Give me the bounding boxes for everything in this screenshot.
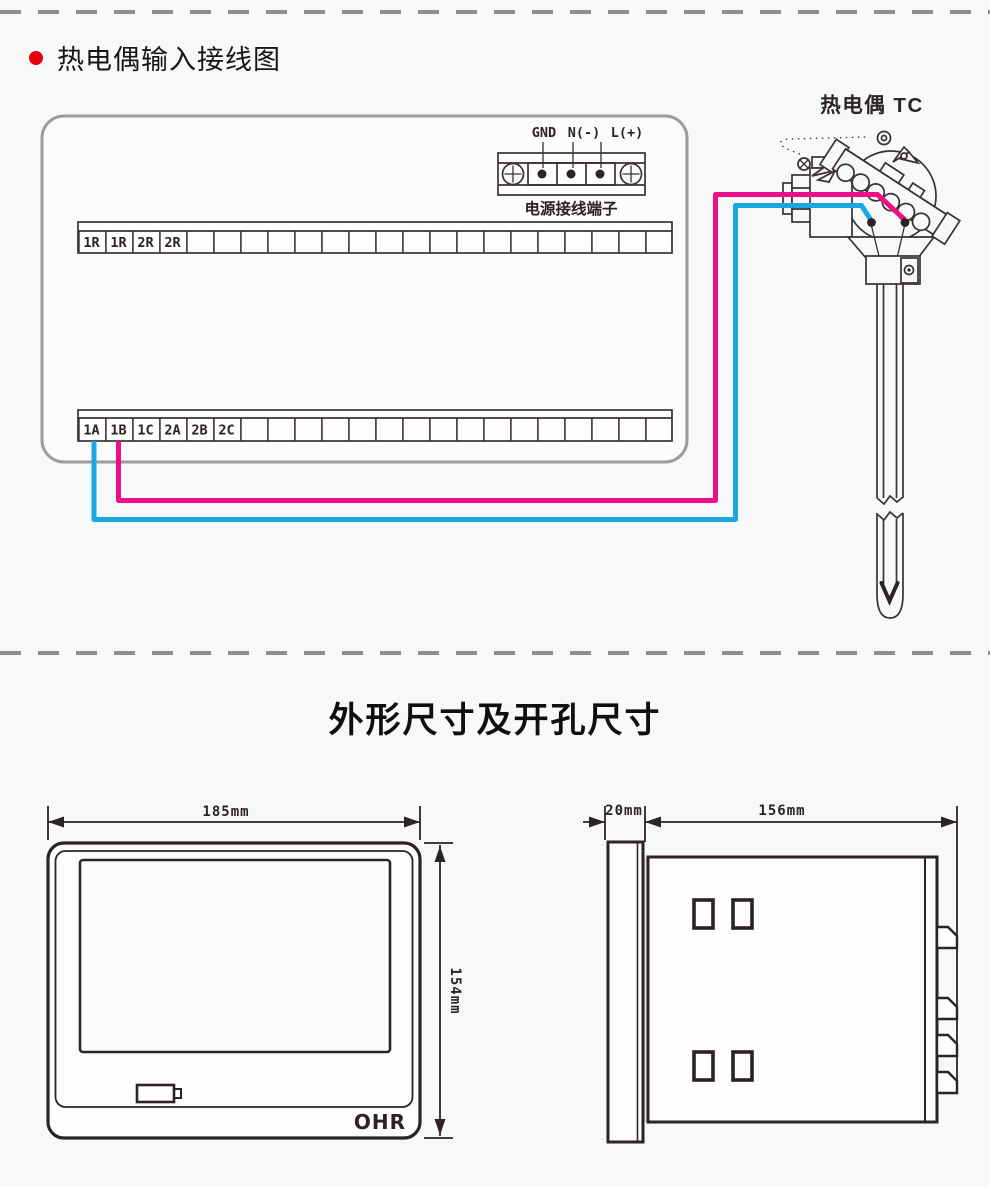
bezel-depth-label: 20mm [605,803,643,819]
thermocouple-wiring-diagram: GND N(-) L(+) 电源接线端子 1R 1R 2R 2R 1A 1B 1… [0,0,990,660]
bottom-terminal-strip: 1A 1B 1C 2A 2B 2C [78,410,672,441]
terminal-label: 2A [164,423,180,439]
section-dashed-divider [0,651,990,655]
front-screen [80,860,390,1052]
side-body [648,857,937,1122]
cap-chain [780,137,866,154]
screw-dot [907,268,910,271]
tc-terminal-dot [867,218,876,227]
dimension-drawings: 185mm OHR 154mm [0,780,990,1170]
arrow-right-icon [404,817,420,828]
screw-icon [503,164,524,185]
power-label-l: L(+) [611,125,644,141]
power-terminal-dot-gnd [538,170,547,179]
arrow-right-icon [941,817,957,828]
top-terminal-strip: 1R 1R 2R 2R [78,222,672,253]
terminal-label: 1R [110,235,127,251]
body-depth-label: 156mm [758,803,805,819]
clamp-slot [694,1052,713,1080]
dimensions-section-title: 外形尺寸及开孔尺寸 [0,692,990,743]
rear-latch [937,927,957,948]
terminal-label: 2R [137,235,154,251]
thermocouple-drawing: 热电偶 TC [780,93,964,618]
rear-latch [937,1035,957,1056]
front-view: 185mm OHR 154mm [48,804,463,1138]
rear-latch [937,998,957,1019]
manual-page: 热电偶输入接线图 [0,0,990,1187]
front-height-label: 154mm [447,967,463,1014]
tc-funnel [848,237,934,258]
terminal-label: 1C [137,423,153,439]
terminal-label: 2C [218,423,234,439]
terminal-label: 2R [164,235,181,251]
power-terminal-dot-n [567,170,576,179]
tc-terminal-dot [901,218,910,227]
terminal-label: 1R [83,235,100,251]
power-label-n: N(-) [568,125,601,141]
front-height-dimension: 154mm [424,843,463,1138]
thermocouple-label: 热电偶 TC [820,93,924,117]
arrow-up-icon [435,846,446,862]
clamp-slot [733,900,752,928]
rear-latch [937,1072,957,1093]
clamp-slot [694,900,713,928]
power-label-gnd: GND [532,125,556,141]
front-width-label: 185mm [202,804,249,820]
clamp-slot [733,1052,752,1080]
terminal-label: 1B [110,423,126,439]
chain-screw-icon [878,132,891,145]
brand-logo: OHR [354,1110,406,1134]
arrow-right-icon [589,817,605,828]
arrow-left-icon [645,817,661,828]
power-terminal-dot-l [596,170,605,179]
arrow-down-icon [435,1119,446,1135]
tc-tip-mark [882,583,898,601]
front-width-dimension: 185mm [48,804,420,840]
tc-protection-tube [877,284,903,618]
terminal-label: 1A [83,423,99,439]
screw-icon [621,164,642,185]
arrow-left-icon [48,817,64,828]
power-terminal-caption: 电源接线端子 [524,199,618,218]
side-view: 20mm 156mm [583,803,957,1142]
terminal-label: 2B [191,423,207,439]
